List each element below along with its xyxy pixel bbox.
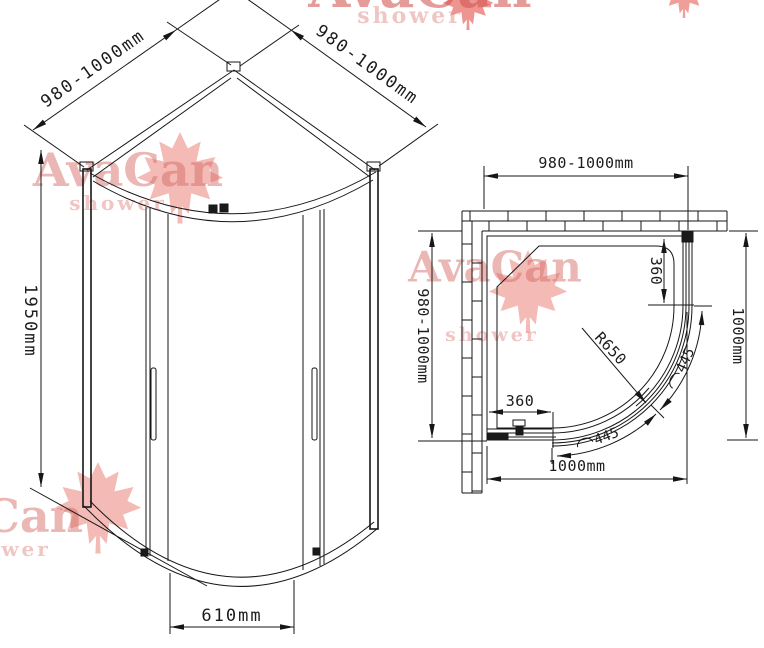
dim-line-extension [236,0,291,30]
right-wall-inner-edge [237,78,370,177]
plan-bottom-width-dim-label: 1000mm [548,457,605,475]
left-wall-top-edge [87,70,234,170]
floor-reference-line [30,488,207,586]
sliding-door-2 [552,388,649,433]
right-wall-top-edge [234,70,375,170]
door-roller-bracket [513,420,525,426]
front-door-opening-dim-label: 610mm [201,606,262,626]
bottom-rail-outer [84,506,378,586]
top-roller [220,204,228,212]
top-rail-outer [90,172,376,214]
curved-track [552,306,689,443]
plan-view: 980-1000mm 980-1000mm 1000mm 1000mm 360 … [414,154,758,493]
technical-drawing: 980-1000mm 980-1000mm 1950mm 610mm [0,0,764,648]
arc-length-symbol-icon [667,371,679,388]
svg-text:445: 445 [592,425,621,449]
front-left-width-dim-label: 980-1000mm [37,26,149,113]
bottom-panel-dim-label: 360 [506,392,535,410]
extension-line [240,25,299,66]
radius-dim-label: R650 [591,329,630,369]
left-width-dim-line [33,30,176,130]
extension-line [167,22,231,65]
door-roller-bracket [516,426,523,435]
wall-profile-bracket [488,433,508,440]
front-enclosure-frame [30,62,380,586]
plan-right-depth-dim-label: 1000mm [729,307,747,364]
left-post [83,169,91,507]
top-rail-inner [93,180,373,222]
blueprint-page: AvaCan shower AvaCan AvaCan shower AvaCa… [0,0,764,648]
plan-top-width-dim-label: 980-1000mm [538,154,633,172]
front-height-dim-label: 1950mm [20,284,40,357]
bottom-roller [313,548,320,555]
right-panel-dim-label: 360 [647,257,665,286]
right-door-handle [312,368,317,440]
wall-profile-bracket [682,231,693,242]
left-wall-inner-edge [93,78,231,177]
front-right-width-dim-label: 980-1000mm [312,21,423,109]
front-view: 980-1000mm 980-1000mm 1950mm 610mm [20,0,438,634]
svg-text:445: 445 [673,346,698,376]
extension-line [651,405,664,418]
curved-track-outer [552,306,692,446]
left-door-handle [151,368,156,440]
extension-line [379,124,438,166]
right-width-dim-line [291,30,426,127]
dim-line-extension [176,0,236,30]
right-post [370,169,378,529]
extension-line [24,125,84,167]
plan-left-depth-dim-label: 980-1000mm [414,288,432,383]
top-roller [209,205,217,213]
bottom-rail-inner [90,501,374,577]
